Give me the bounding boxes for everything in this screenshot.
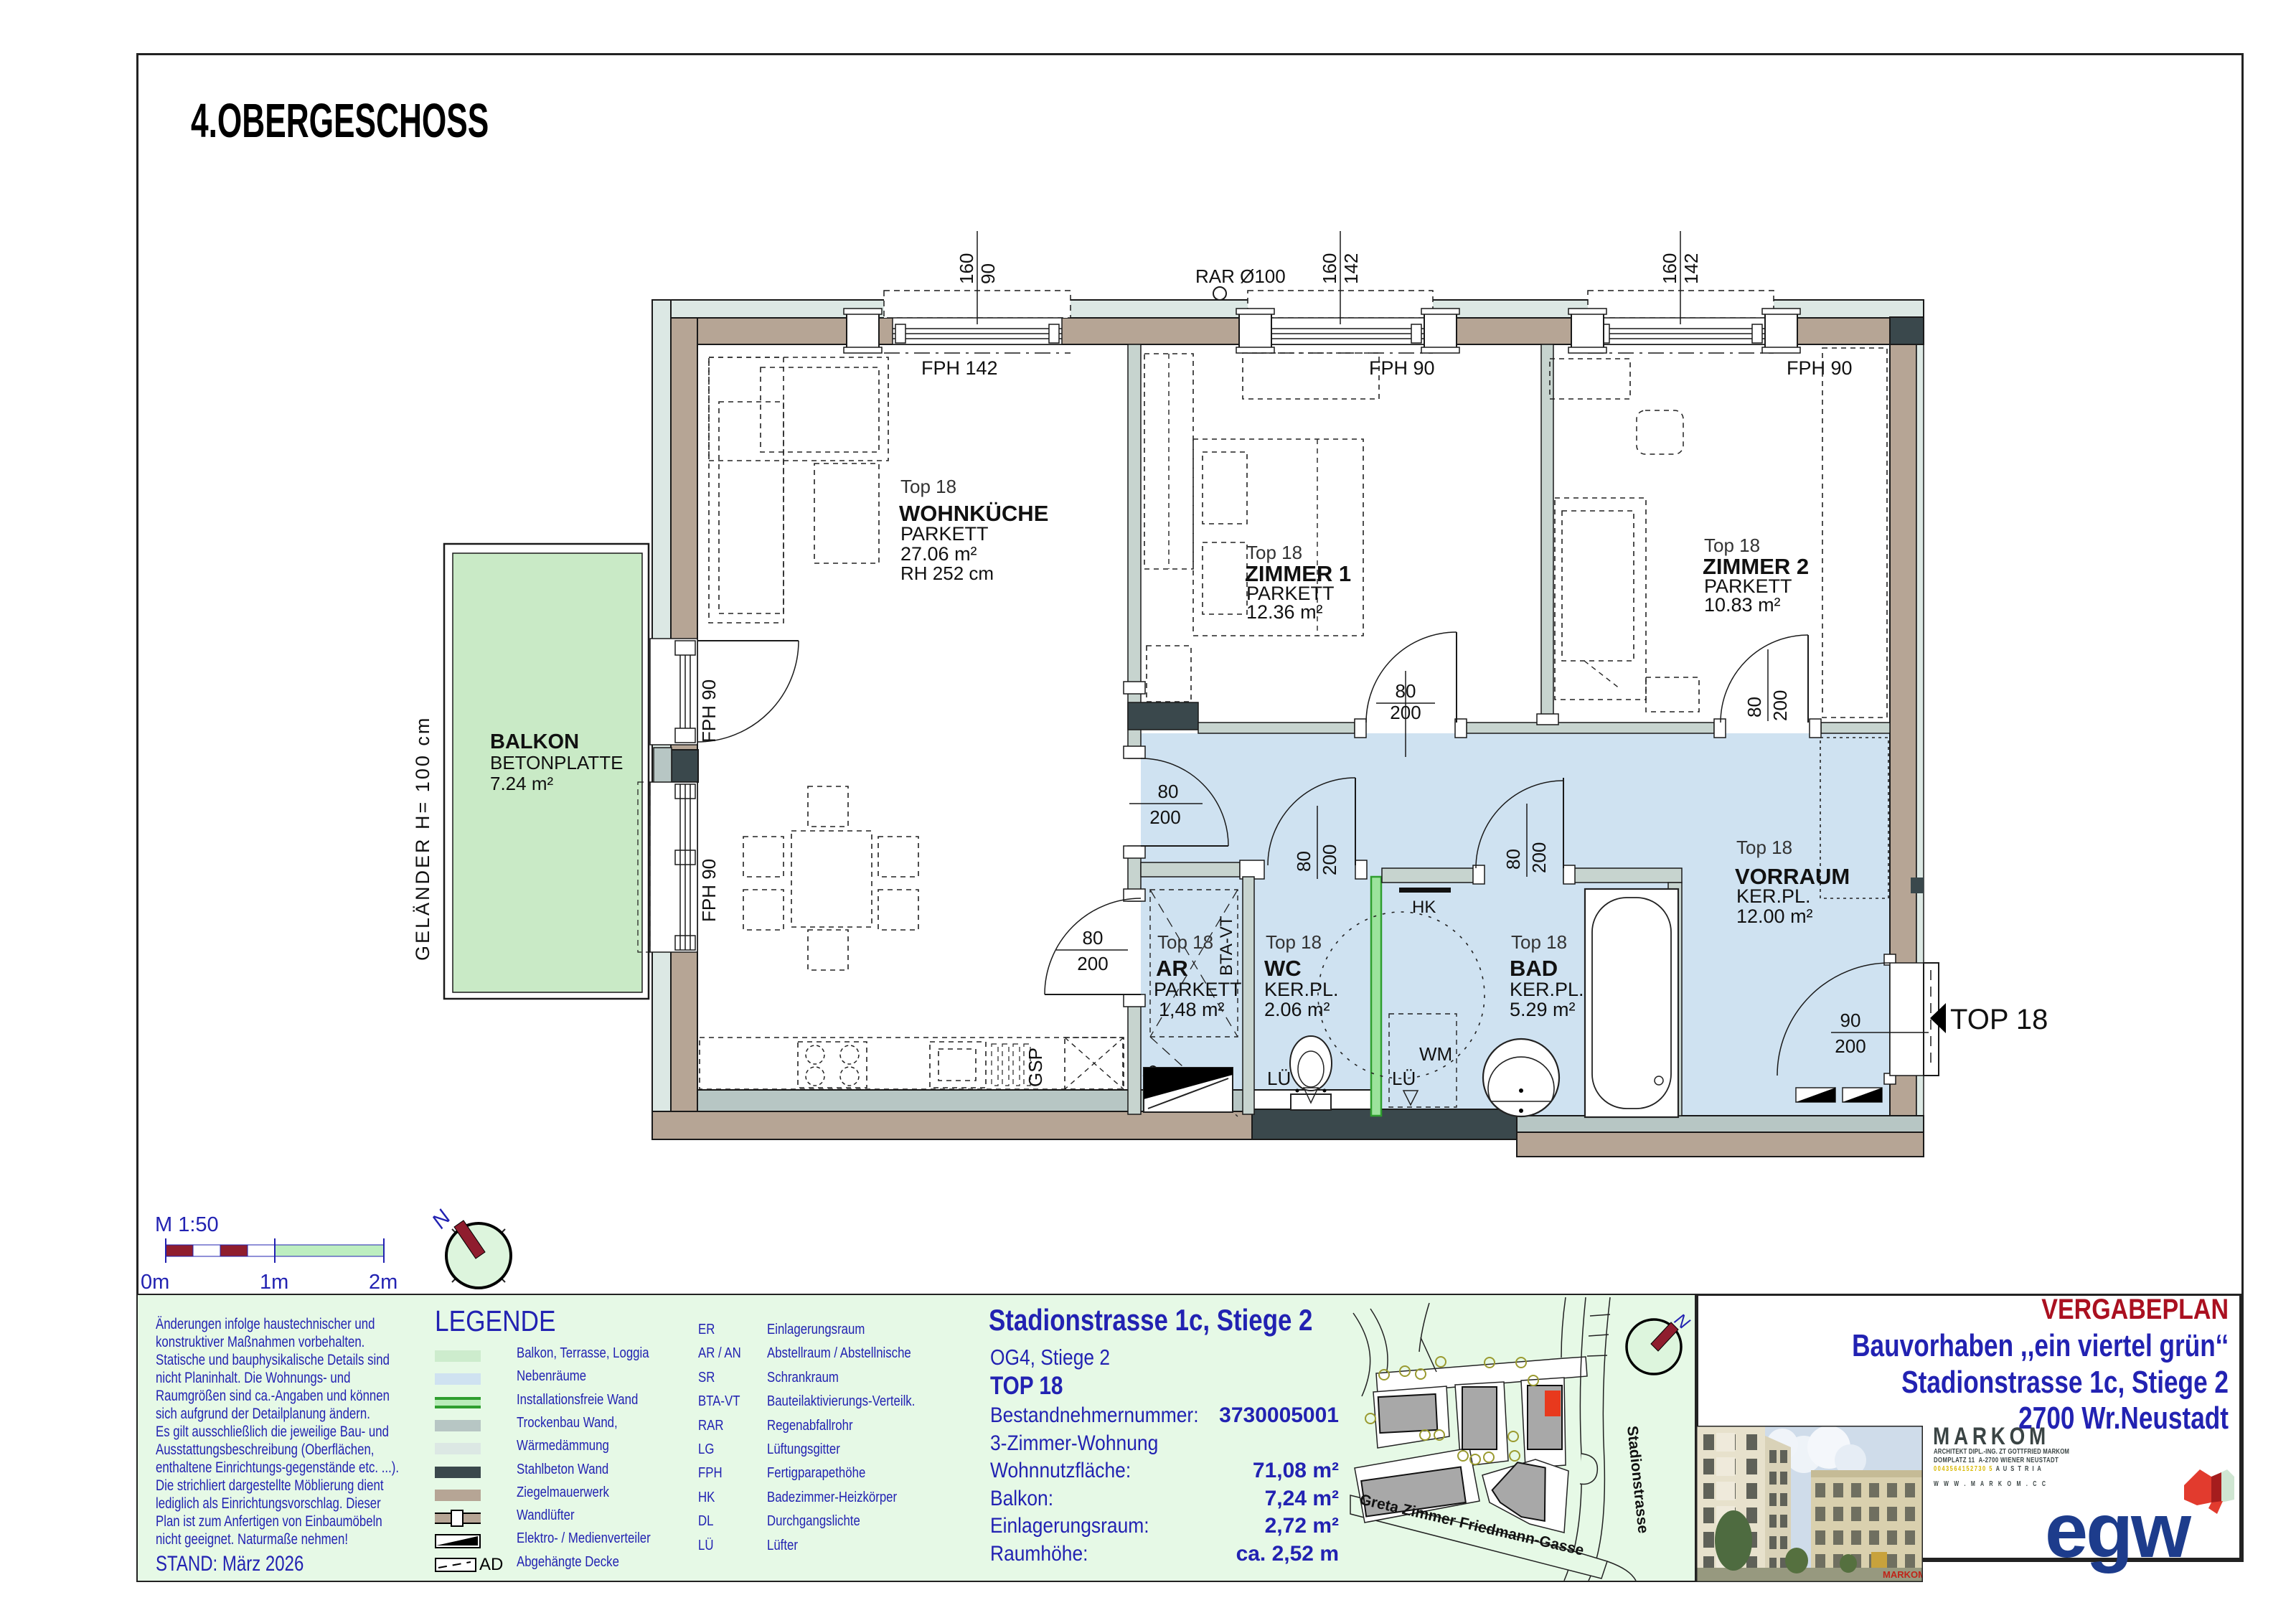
svg-text:2m: 2m [369,1271,397,1294]
svg-text:FPH 142: FPH 142 [921,357,998,379]
svg-text:RAR Ø100: RAR Ø100 [1195,265,1286,287]
svg-text:160: 160 [956,253,977,284]
svg-text:200: 200 [1149,806,1180,828]
svg-text:80: 80 [1293,851,1314,872]
svg-text:RH 252 cm: RH 252 cm [900,563,994,584]
svg-text:HK: HK [1412,898,1436,917]
svg-text:142: 142 [1680,253,1702,284]
svg-text:90: 90 [977,263,999,284]
svg-text:PARKETT: PARKETT [1154,979,1242,1000]
svg-text:GSP: GSP [1025,1048,1046,1087]
svg-text:FPH 90: FPH 90 [1787,357,1853,379]
svg-text:PARKETT: PARKETT [900,523,989,545]
svg-text:WM: WM [1419,1043,1452,1065]
svg-text:142: 142 [1340,253,1362,284]
svg-text:200: 200 [1835,1035,1865,1057]
svg-text:WC: WC [1264,956,1302,981]
svg-text:AR: AR [1156,956,1188,981]
svg-text:2.06 m²: 2.06 m² [1264,999,1330,1020]
svg-text:BAD: BAD [1510,956,1558,981]
svg-text:BETONPLATTE: BETONPLATTE [490,752,623,773]
svg-text:BTA-VT: BTA-VT [1217,916,1236,976]
svg-text:0m: 0m [141,1271,169,1294]
svg-text:BALKON: BALKON [490,730,579,753]
svg-text:1,48 m²: 1,48 m² [1159,999,1225,1020]
svg-text:MARKOM: MARKOM [1883,1569,1923,1580]
svg-text:KER.PL.: KER.PL. [1510,979,1584,1000]
svg-text:Top 18: Top 18 [1736,837,1792,858]
svg-text:12.00 m²: 12.00 m² [1736,905,1813,927]
svg-text:200: 200 [1769,690,1791,721]
svg-text:LÜ: LÜ [1267,1068,1291,1089]
svg-text:200: 200 [1528,842,1550,873]
svg-text:FPH 90: FPH 90 [698,679,720,743]
svg-text:LÜ: LÜ [1392,1068,1416,1089]
svg-text:Top 18: Top 18 [1246,542,1302,563]
svg-text:10.83 m²: 10.83 m² [1704,594,1781,616]
svg-text:M 1:50: M 1:50 [155,1213,219,1236]
svg-text:160: 160 [1319,253,1340,284]
svg-text:12.36 m²: 12.36 m² [1246,601,1323,623]
svg-text:Top 18: Top 18 [900,476,956,497]
svg-text:WOHNKÜCHE: WOHNKÜCHE [899,501,1048,526]
svg-text:200: 200 [1319,845,1340,875]
svg-text:160: 160 [1659,253,1680,284]
svg-text:Top 18: Top 18 [1157,931,1213,953]
svg-text:Stadionstrasse: Stadionstrasse [1624,1425,1652,1534]
svg-text:Top 18: Top 18 [1704,535,1760,556]
svg-text:5.29 m²: 5.29 m² [1510,999,1576,1020]
svg-text:GELÄNDER H= 100 cm: GELÄNDER H= 100 cm [412,716,433,961]
svg-text:KER.PL.: KER.PL. [1264,979,1339,1000]
svg-text:Top 18: Top 18 [1266,931,1322,953]
svg-text:80: 80 [1502,849,1524,870]
svg-text:80: 80 [1744,697,1765,718]
svg-text:1m: 1m [260,1271,288,1294]
svg-text:80: 80 [1083,927,1104,949]
svg-text:TOP 18: TOP 18 [1950,1004,2048,1035]
svg-text:27.06 m²: 27.06 m² [900,543,977,565]
svg-text:Top 18: Top 18 [1511,931,1567,953]
svg-text:80: 80 [1158,781,1179,802]
svg-text:90: 90 [1840,1010,1861,1031]
svg-text:200: 200 [1077,953,1108,974]
svg-text:KER.PL.: KER.PL. [1736,885,1811,907]
svg-text:N: N [428,1205,456,1233]
svg-text:7.24 m²: 7.24 m² [490,773,553,794]
svg-text:FPH 90: FPH 90 [698,859,720,922]
